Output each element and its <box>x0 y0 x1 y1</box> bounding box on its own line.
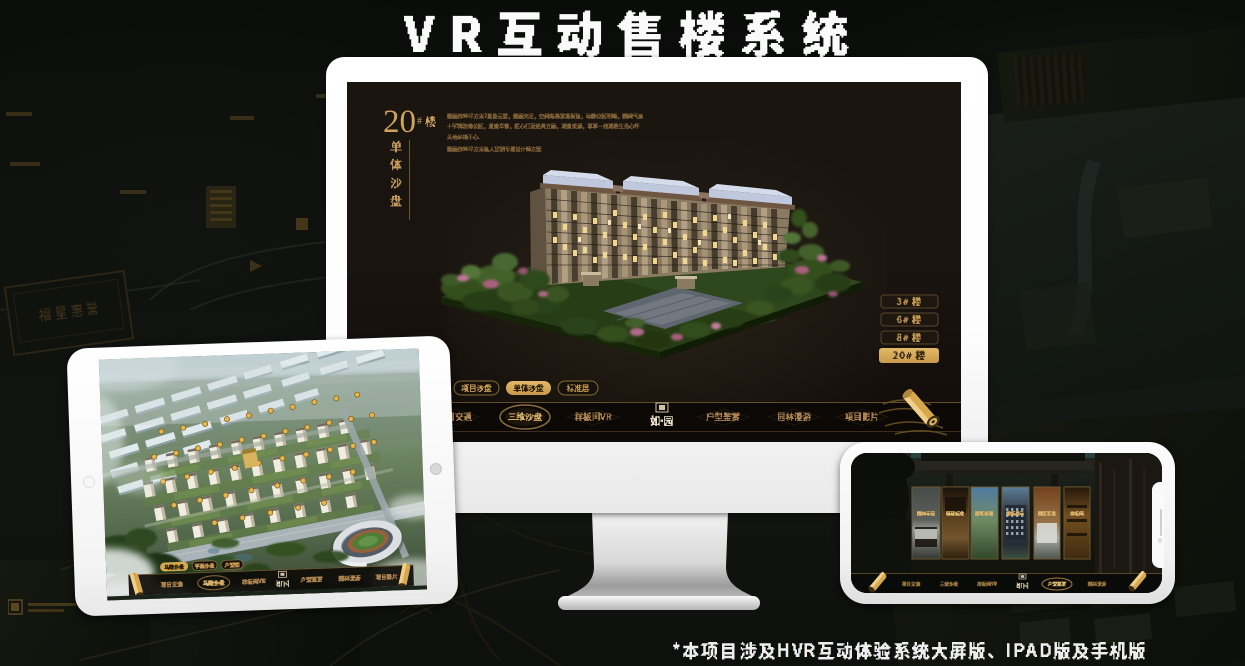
svg-text:20: 20 <box>383 104 416 140</box>
svg-text:#: # <box>417 116 422 127</box>
